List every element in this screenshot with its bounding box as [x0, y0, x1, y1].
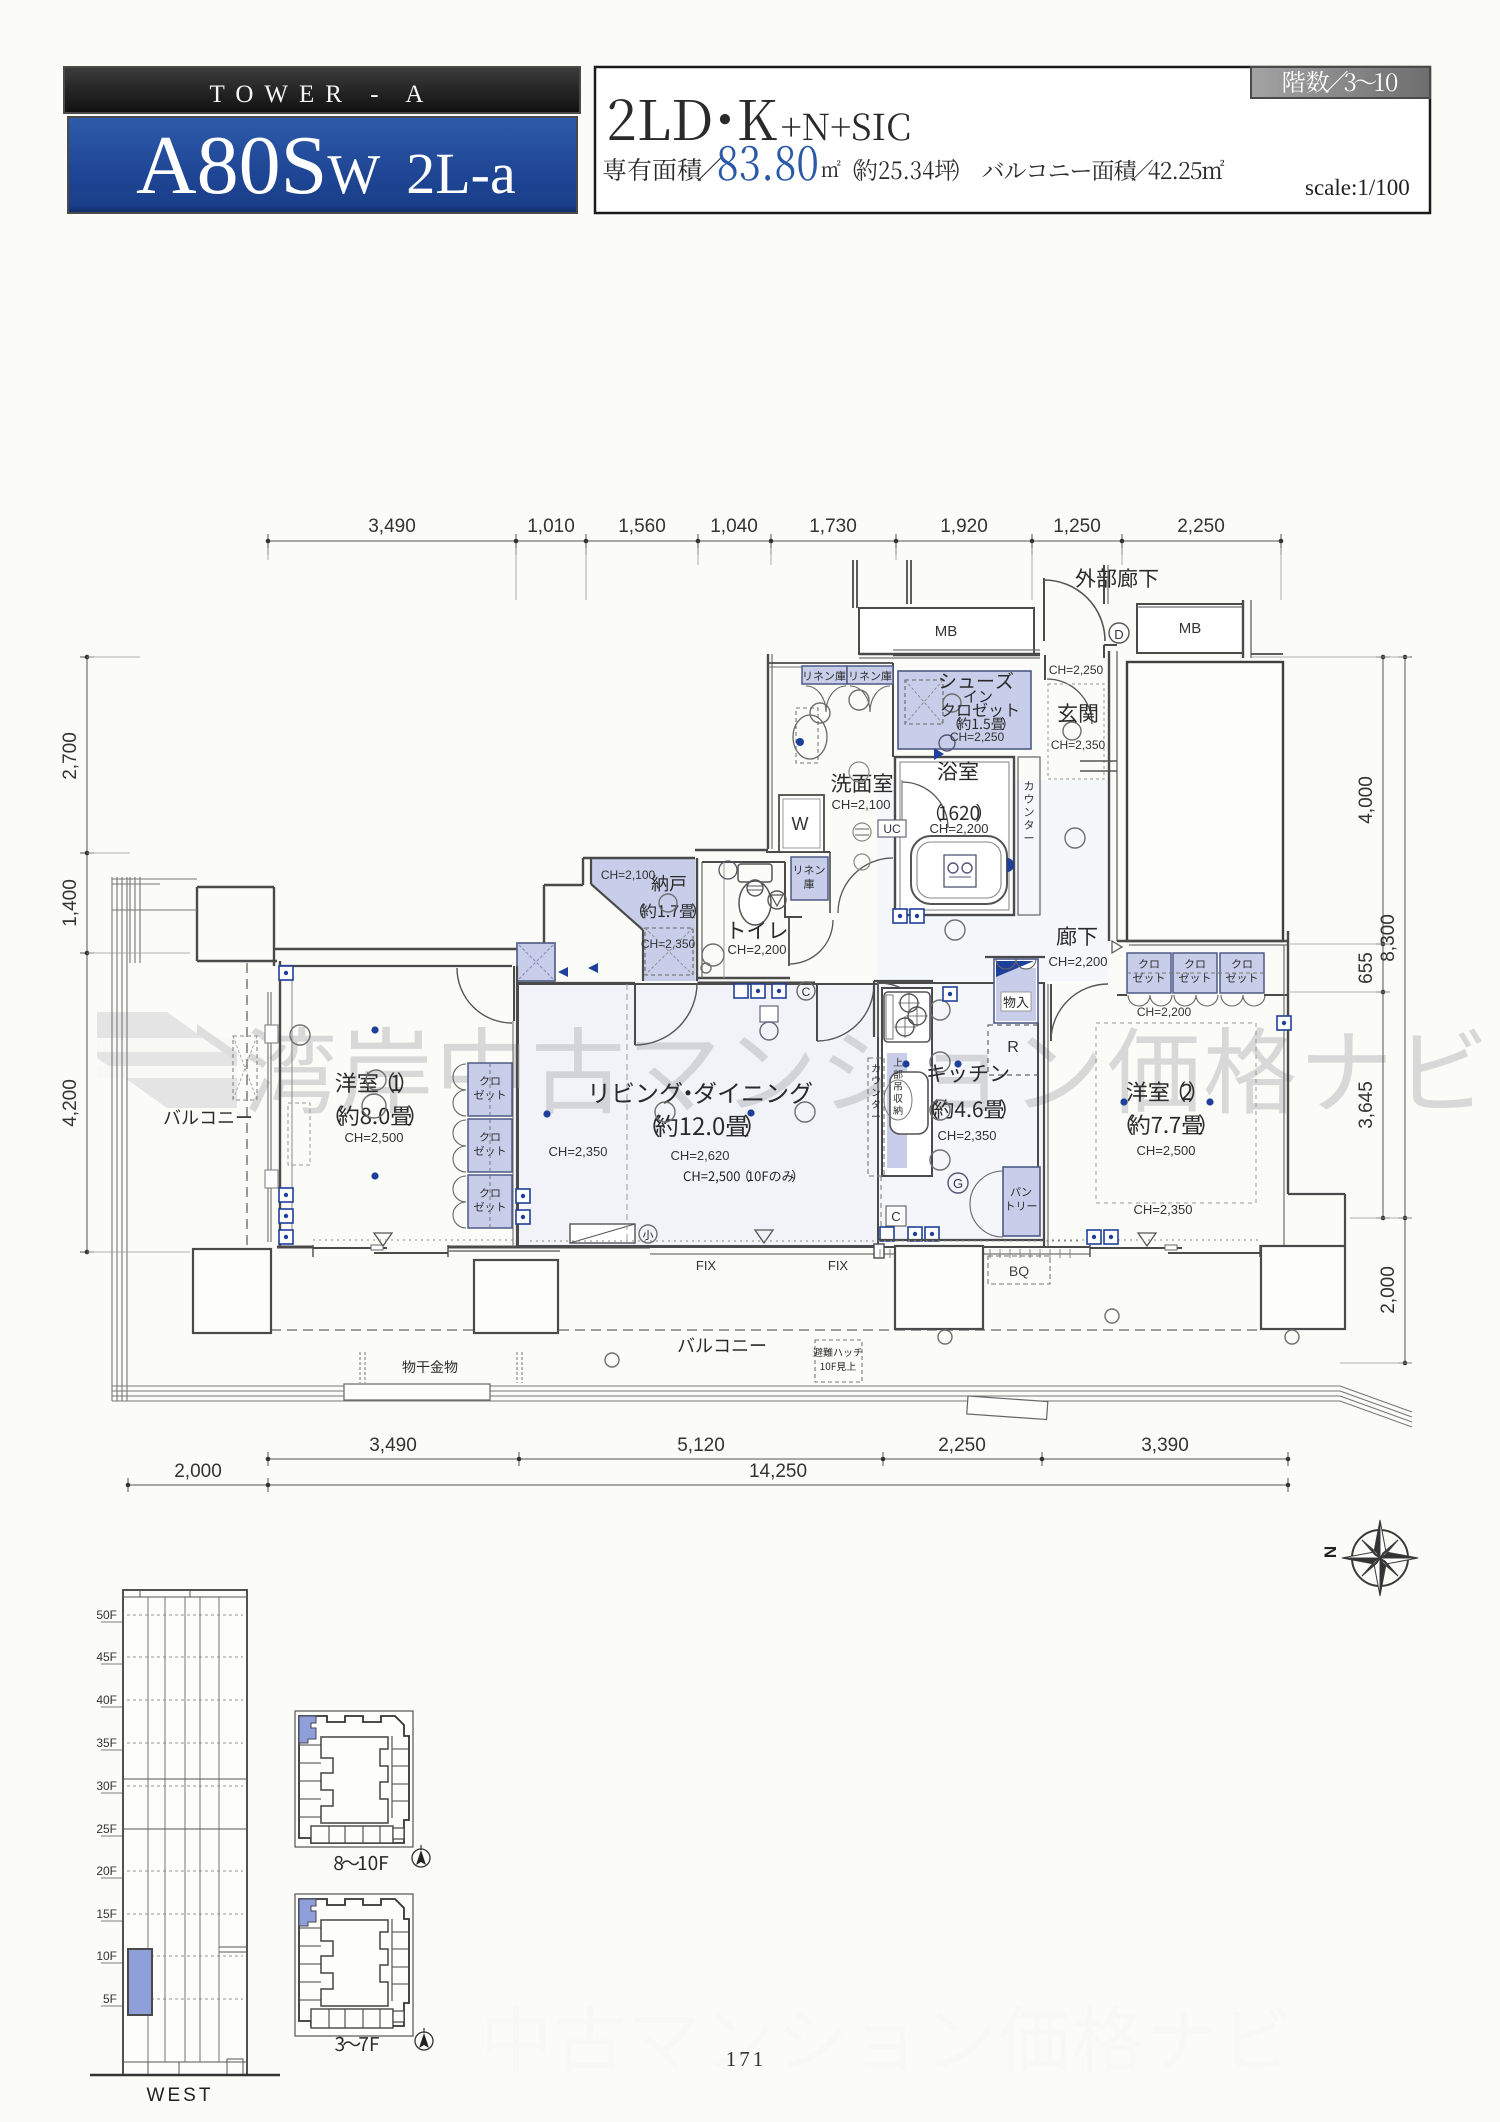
svg-text:FIX: FIX — [828, 1258, 849, 1273]
svg-text:CH=2,100: CH=2,100 — [832, 797, 891, 812]
svg-text:3,390: 3,390 — [1141, 1435, 1189, 1456]
svg-text:D: D — [1114, 627, 1123, 642]
svg-text:14,250: 14,250 — [749, 1461, 807, 1482]
svg-text:1,920: 1,920 — [940, 516, 988, 537]
svg-text:5F: 5F — [103, 1992, 117, 2006]
svg-text:2,250: 2,250 — [1177, 516, 1225, 537]
svg-text:2,250: 2,250 — [938, 1435, 986, 1456]
svg-text:MB: MB — [1179, 620, 1202, 637]
svg-text:2,000: 2,000 — [174, 1461, 222, 1482]
svg-text:CH=2,250: CH=2,250 — [950, 730, 1005, 744]
svg-text:WEST: WEST — [147, 2085, 214, 2106]
svg-text:3,490: 3,490 — [368, 516, 416, 537]
svg-text:CH=2,620: CH=2,620 — [671, 1148, 730, 1163]
svg-text:171: 171 — [726, 2047, 767, 2071]
svg-text:25F: 25F — [96, 1822, 117, 1836]
svg-text:20F: 20F — [96, 1864, 117, 1878]
svg-text:2,000: 2,000 — [1378, 1266, 1399, 1314]
svg-text:655: 655 — [1356, 952, 1377, 984]
svg-text:CH=2,350: CH=2,350 — [1051, 738, 1106, 752]
svg-text:C: C — [891, 1209, 900, 1224]
svg-text:R: R — [1007, 1039, 1019, 1056]
svg-text:FIX: FIX — [696, 1258, 717, 1273]
svg-text:W: W — [792, 814, 809, 834]
svg-text:3,490: 3,490 — [369, 1435, 417, 1456]
svg-text:3,645: 3,645 — [1356, 1081, 1377, 1129]
svg-text:50F: 50F — [96, 1608, 117, 1622]
svg-text:CH=2,350: CH=2,350 — [1134, 1202, 1193, 1217]
svg-text:CH=2,500: CH=2,500 — [1137, 1143, 1196, 1158]
svg-text:CH=2,100: CH=2,100 — [601, 868, 656, 882]
svg-text:G: G — [953, 1176, 963, 1191]
svg-text:10F: 10F — [96, 1949, 117, 1963]
svg-text:1,560: 1,560 — [618, 516, 666, 537]
svg-text:4,200: 4,200 — [60, 1079, 81, 1127]
svg-text:N: N — [1321, 1546, 1340, 1558]
svg-text:4,000: 4,000 — [1356, 776, 1377, 824]
svg-text:1,250: 1,250 — [1053, 516, 1101, 537]
svg-text:CH=2,200: CH=2,200 — [930, 821, 989, 836]
svg-text:40F: 40F — [96, 1693, 117, 1707]
svg-text:1,040: 1,040 — [710, 516, 758, 537]
svg-text:BQ: BQ — [1009, 1263, 1029, 1279]
svg-text:15F: 15F — [96, 1907, 117, 1921]
svg-text:UC: UC — [883, 822, 901, 836]
svg-text:C: C — [802, 985, 811, 999]
svg-text:1,010: 1,010 — [527, 516, 575, 537]
svg-text:CH=2,350: CH=2,350 — [938, 1128, 997, 1143]
svg-text:1,400: 1,400 — [60, 879, 81, 927]
svg-text:2,700: 2,700 — [60, 732, 81, 780]
svg-text:45F: 45F — [96, 1650, 117, 1664]
svg-text:scale:1/100: scale:1/100 — [1305, 175, 1410, 200]
svg-text:1,730: 1,730 — [809, 516, 857, 537]
svg-text:30F: 30F — [96, 1779, 117, 1793]
svg-text:CH=2,350: CH=2,350 — [549, 1144, 608, 1159]
svg-text:CH=2,500: CH=2,500 — [345, 1130, 404, 1145]
svg-text:CH=2,200: CH=2,200 — [1049, 954, 1108, 969]
svg-text:CH=2,350: CH=2,350 — [641, 937, 696, 951]
svg-text:TOWER - A: TOWER - A — [210, 81, 435, 108]
svg-text:35F: 35F — [96, 1736, 117, 1750]
svg-text:CH=2,250: CH=2,250 — [1049, 663, 1104, 677]
svg-text:CH=2,200: CH=2,200 — [728, 942, 787, 957]
svg-text:MB: MB — [935, 623, 958, 640]
svg-text:CH=2,200: CH=2,200 — [1137, 1005, 1192, 1019]
svg-text:8,300: 8,300 — [1378, 914, 1399, 962]
svg-text:5,120: 5,120 — [677, 1435, 725, 1456]
